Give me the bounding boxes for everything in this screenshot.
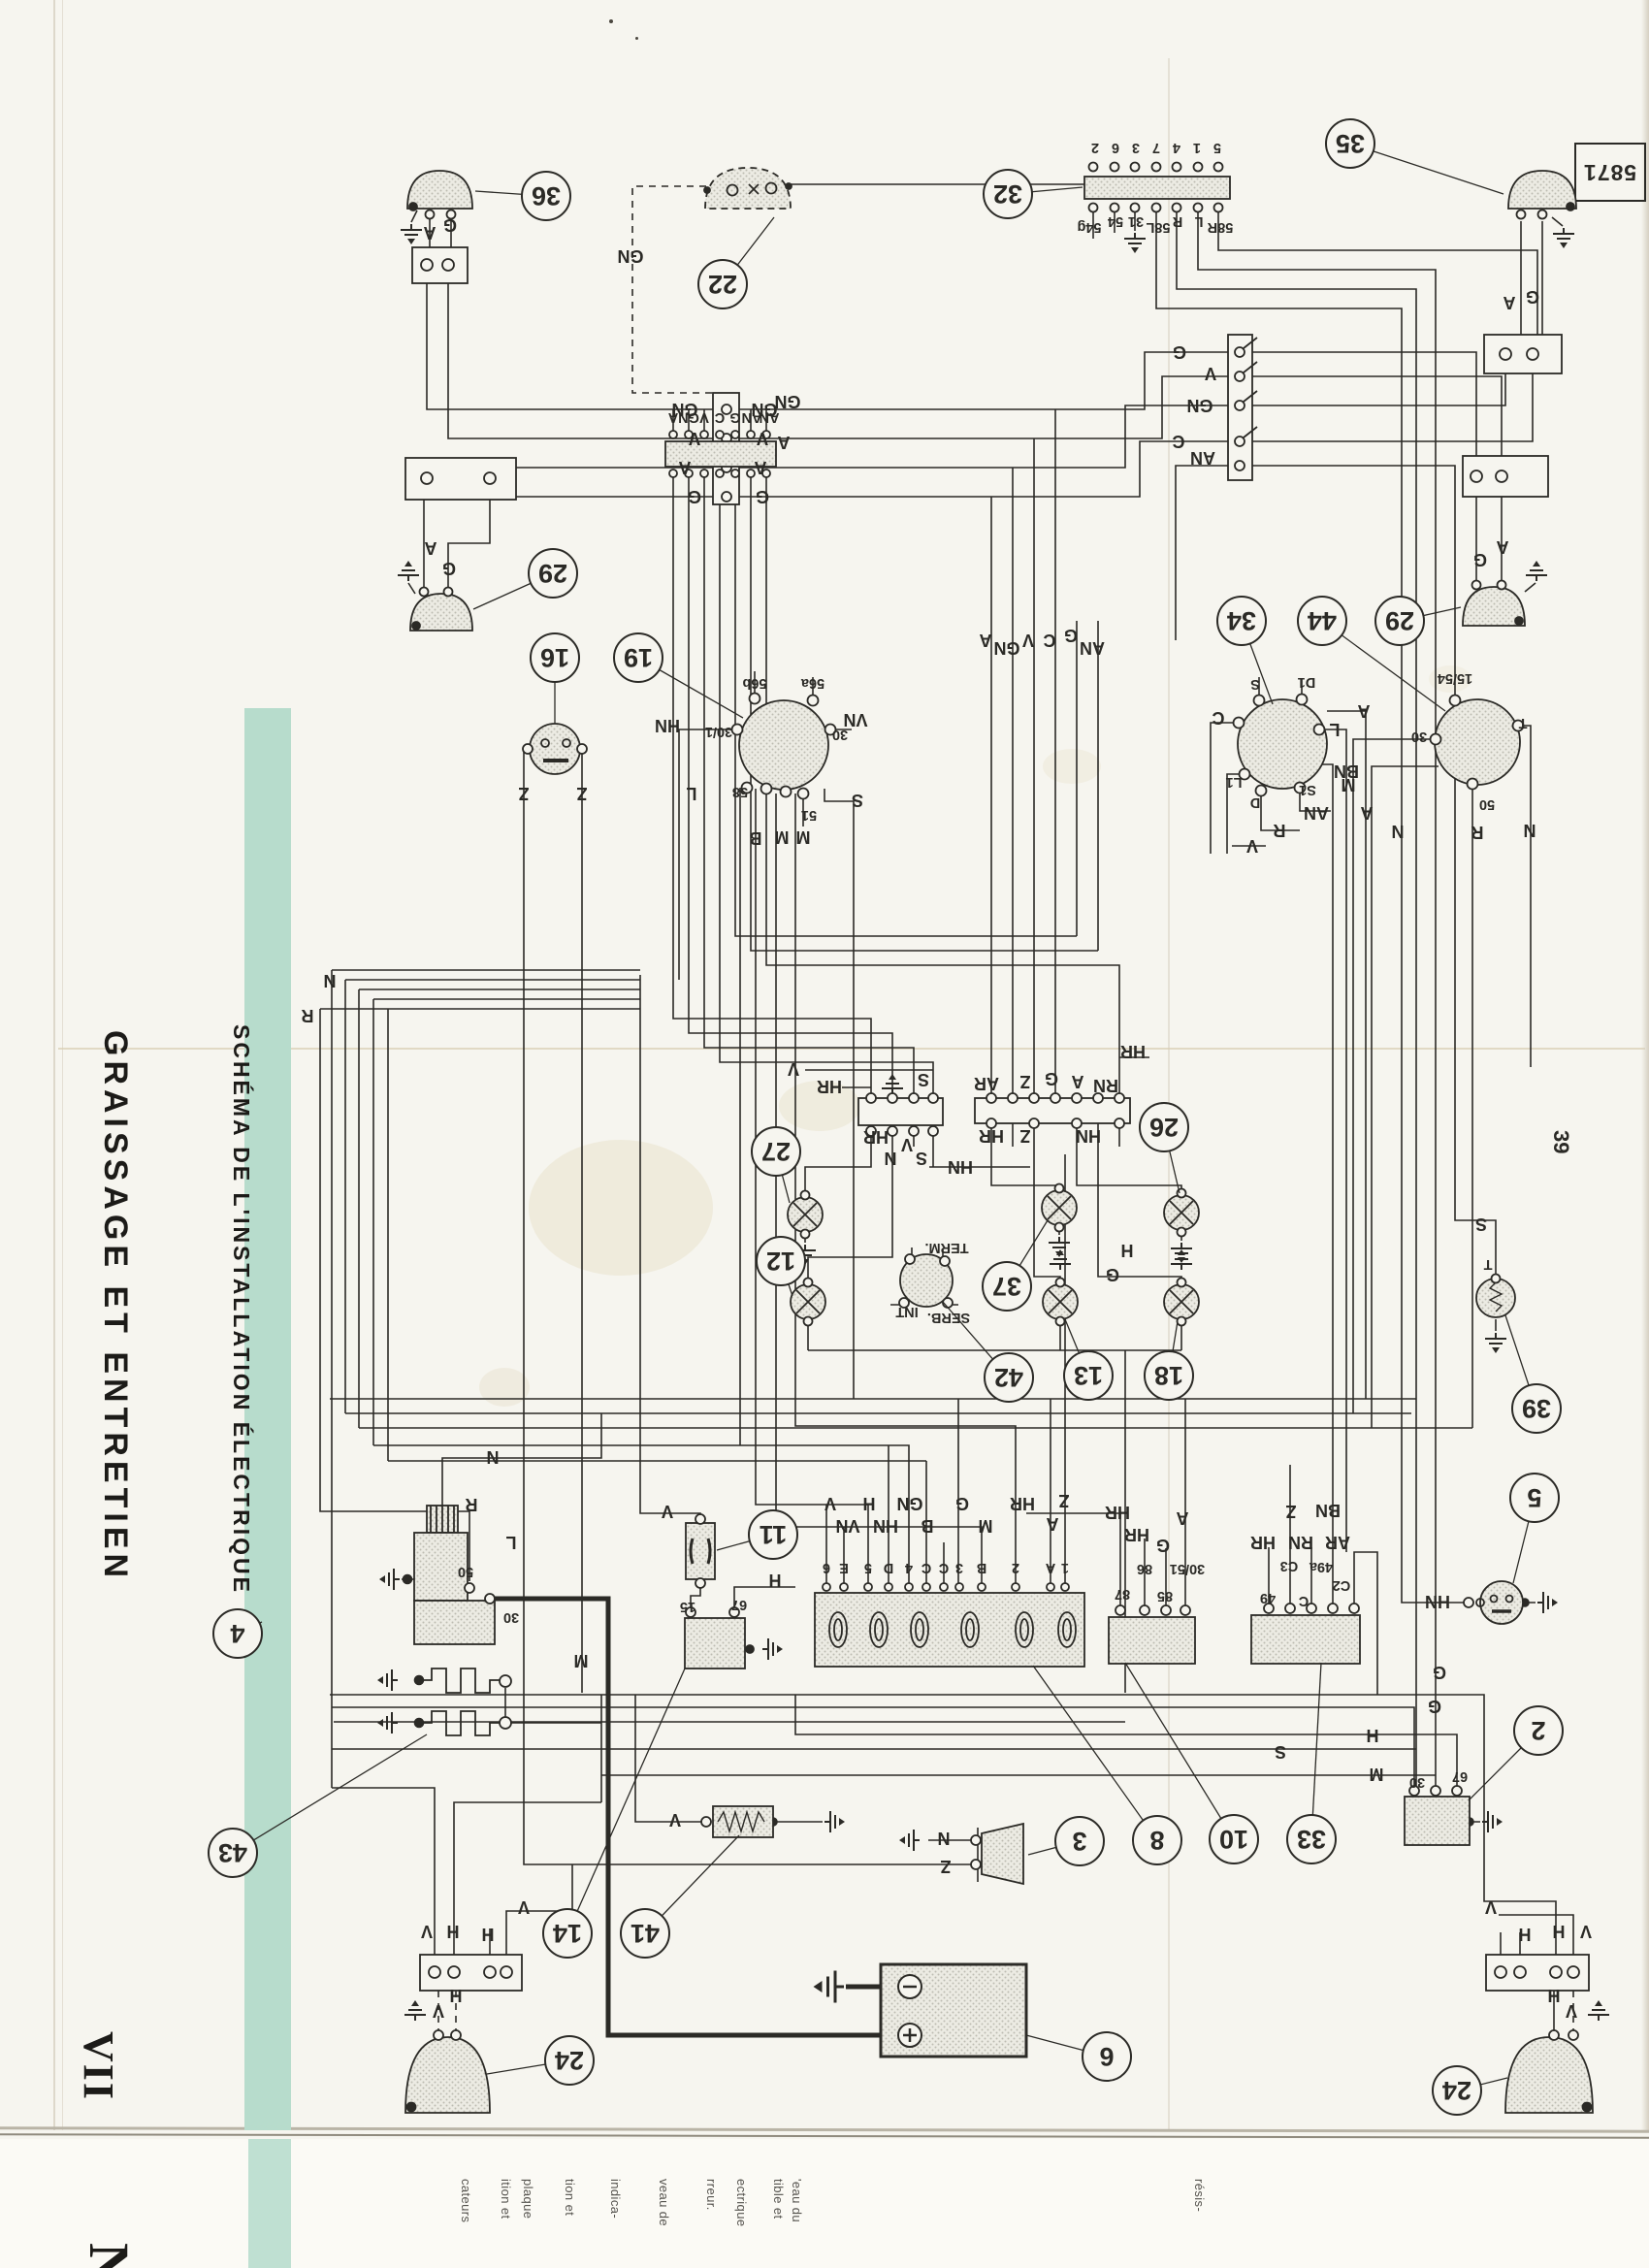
callout-number: 16 xyxy=(540,643,569,672)
wire-label: G xyxy=(955,1494,969,1513)
wire-label: H xyxy=(1548,1986,1561,2005)
heater-resistors-43 xyxy=(419,1669,511,1735)
wire-label: AR xyxy=(1325,1533,1350,1552)
terminal-label: 2 xyxy=(1091,140,1099,155)
wire-label: GN xyxy=(897,1494,923,1513)
terminal-label: 56b xyxy=(742,675,766,691)
regulator-2 xyxy=(1405,1786,1470,1845)
terminal-label: V xyxy=(699,409,709,425)
wire-label: R xyxy=(302,1006,314,1025)
terminal-label: 50 xyxy=(458,1564,473,1579)
wire-label: A xyxy=(1503,293,1516,312)
wire-label: G xyxy=(442,559,456,578)
wire-label: GN xyxy=(994,638,1020,658)
wire-label: A xyxy=(755,458,767,477)
wire-label: V xyxy=(788,1059,799,1079)
callout-leader xyxy=(1311,1663,1321,1839)
callout-number: 6 xyxy=(1099,2042,1114,2071)
two-pin-connectors xyxy=(405,247,1562,500)
wire-label: V xyxy=(1485,1897,1497,1917)
terminal-label: 49 xyxy=(1260,1590,1276,1605)
scanned-manual-page: VII GRAISSAGE ET ENTRETIEN SCHÉMA DE L'I… xyxy=(0,0,1649,2268)
terminal-label: 7 xyxy=(1152,140,1160,155)
terminal-label: S1 xyxy=(1299,782,1316,797)
stoplight-switch-16 xyxy=(523,724,587,774)
wire-label: A xyxy=(980,631,992,650)
wire-label: Z xyxy=(1020,1126,1031,1146)
flasher-switch-34 xyxy=(1234,695,1328,796)
terminal-label: A xyxy=(667,409,678,425)
terminal-label: TERM. xyxy=(924,1240,968,1255)
wire-label: A xyxy=(425,538,437,558)
wire-label: Z xyxy=(1059,1491,1070,1510)
wire-label: A xyxy=(1361,803,1374,823)
callout-number: 34 xyxy=(1227,606,1256,635)
wire-label: A xyxy=(1497,537,1509,557)
wire-label: S xyxy=(1275,1742,1286,1762)
connector-32 xyxy=(1084,163,1230,212)
terminal-label: 58R xyxy=(1207,219,1233,235)
temp-gauge-39 xyxy=(1476,1275,1515,1318)
terminal-label: 1 xyxy=(1193,140,1201,155)
terminal-label: C xyxy=(921,1560,931,1575)
callout-number: 13 xyxy=(1074,1361,1103,1390)
terminal-label: 15 xyxy=(680,1599,695,1614)
terminal-label: C xyxy=(714,409,725,425)
wire-label: VN xyxy=(835,1516,859,1536)
terminal-label: S xyxy=(1250,676,1260,692)
wire-label: HN xyxy=(1425,1592,1450,1611)
wire-label: HR xyxy=(1124,1525,1149,1544)
wire-label: G xyxy=(1473,550,1487,569)
terminal-label: E xyxy=(839,1560,849,1575)
callout-number: 3 xyxy=(1072,1827,1086,1856)
wire-label: G xyxy=(756,487,769,506)
wire-label: V xyxy=(1022,631,1034,650)
paper-stains xyxy=(479,665,1471,1407)
wire-label: S xyxy=(916,1149,927,1168)
wire-label: GN xyxy=(1187,396,1213,415)
wire-label: A xyxy=(1072,1072,1084,1091)
terminal-label: C3 xyxy=(1280,1558,1299,1573)
wire-label: HR xyxy=(863,1127,889,1147)
fuel-gauge-42 xyxy=(899,1254,953,1308)
lamp-37a xyxy=(1042,1184,1077,1232)
wire-label: G xyxy=(1064,626,1078,645)
callout-number: 2 xyxy=(1531,1716,1545,1745)
wire-label: BN xyxy=(1315,1501,1341,1520)
callout-leader xyxy=(1033,1666,1157,1840)
terminal-label: 30/51 xyxy=(1170,1561,1205,1576)
wire-label: HN xyxy=(873,1516,898,1536)
terminal-label: 1 xyxy=(1061,1560,1069,1575)
terminal-label: 58L xyxy=(1146,219,1170,235)
flasher-relay-33 xyxy=(1251,1604,1360,1664)
terminal-label: G xyxy=(729,409,740,425)
wire-label: M xyxy=(1342,775,1356,794)
switch-11 xyxy=(686,1514,715,1588)
wire-label: H xyxy=(450,1986,463,2005)
terminal-label: 15/54 xyxy=(1438,670,1472,686)
wire-label: Z xyxy=(1020,1072,1031,1091)
wire-label: G xyxy=(1433,1663,1446,1682)
wire-label: HR xyxy=(1120,1042,1146,1061)
terminal-label: 30 xyxy=(1411,729,1427,744)
relay-10 xyxy=(1109,1605,1195,1664)
wire-label: G xyxy=(1106,1265,1119,1284)
wire-label: L xyxy=(506,1533,517,1552)
lamp-27 xyxy=(788,1191,823,1239)
terminal-label: T xyxy=(1518,715,1527,730)
wire-label: G xyxy=(1045,1069,1058,1088)
terminal-label: 5 xyxy=(864,1560,872,1575)
wire-label: H xyxy=(482,1925,495,1944)
wire-label: H xyxy=(769,1571,782,1590)
wire-label: R xyxy=(1471,823,1484,842)
right-vertical-connector-switch xyxy=(1228,335,1257,480)
wire-label: G xyxy=(688,487,701,506)
callout-leader xyxy=(567,1669,685,1933)
callout-leader xyxy=(1125,1663,1234,1839)
terminal-label: SERB. xyxy=(927,1310,970,1325)
terminal-label: 50 xyxy=(1479,796,1495,812)
light-switch-19 xyxy=(732,694,836,799)
wire-label: H xyxy=(863,1494,876,1513)
wire-label: M xyxy=(796,827,811,847)
horn-5 xyxy=(1464,1581,1523,1624)
ballast-resistor-41 xyxy=(701,1806,773,1837)
parking-lamp-35 xyxy=(1508,171,1576,219)
wire-label: AN xyxy=(1080,638,1105,658)
terminal-label: GN xyxy=(678,409,699,425)
callout-number: 32 xyxy=(993,179,1022,209)
terminal-label: C xyxy=(1298,1593,1309,1608)
wire-label: Z xyxy=(941,1857,952,1876)
wire-label: HN xyxy=(655,716,680,735)
wire-label: V xyxy=(1580,1922,1592,1941)
wire-label: V xyxy=(901,1135,913,1154)
terminal-label: L xyxy=(1194,213,1203,229)
terminal-label: 87 xyxy=(1115,1586,1130,1602)
wire-label: R xyxy=(1274,821,1286,840)
lamp-18 xyxy=(1164,1279,1199,1326)
callout-number: 22 xyxy=(708,270,737,299)
wire-label: V xyxy=(1246,836,1258,856)
wire-label: RN xyxy=(1288,1533,1313,1552)
callout-number: 5 xyxy=(1527,1483,1541,1512)
wire-label: H xyxy=(1553,1922,1566,1941)
wire-label: VN xyxy=(843,710,867,729)
terminal-label: 86 xyxy=(1137,1561,1152,1576)
terminal-label: C2 xyxy=(1333,1577,1351,1593)
callout-number: 8 xyxy=(1149,1826,1164,1855)
dash-connector-right xyxy=(975,1093,1130,1128)
wire-label: HR xyxy=(1010,1494,1035,1513)
wire-label: GN xyxy=(775,392,801,411)
callout-number: 36 xyxy=(532,181,561,211)
wire-label: G xyxy=(443,215,457,235)
wire-label: R xyxy=(466,1495,478,1514)
wire-label: C xyxy=(1173,432,1185,451)
terminal-label: INT xyxy=(895,1304,919,1319)
wire-label: V xyxy=(1205,364,1216,383)
terminal-label: 30 xyxy=(503,1609,519,1625)
terminal-label: 67 xyxy=(1452,1768,1468,1784)
wire-label: Z xyxy=(519,784,530,803)
terminal-label: 4 xyxy=(905,1560,913,1575)
wire-label: N xyxy=(885,1149,897,1168)
wiring-diagram: 3622323529161934442927123742131826394431… xyxy=(0,0,1649,2268)
wire-label: N xyxy=(487,1447,500,1467)
wire-label: C xyxy=(1212,708,1225,728)
wire-label: L xyxy=(1330,720,1341,739)
tail-lamp-29-left xyxy=(410,588,472,632)
wire-label: H xyxy=(1367,1726,1379,1745)
callout-number: 43 xyxy=(218,1838,247,1867)
callout-number: 29 xyxy=(538,559,567,588)
wire-label: S xyxy=(852,791,863,810)
lamp-26 xyxy=(1164,1189,1199,1237)
wire-label: RN xyxy=(1093,1076,1118,1095)
terminal-label: 85 xyxy=(1157,1588,1173,1604)
ignition-switch-44 xyxy=(1431,696,1524,790)
terminal-label: R xyxy=(1172,213,1182,229)
wire-label: S xyxy=(918,1070,929,1089)
callout-number: 41 xyxy=(630,1919,660,1948)
terminal-label: C xyxy=(938,1560,949,1575)
terminal-label: 6 xyxy=(1112,140,1119,155)
wire-label: N xyxy=(1392,822,1405,841)
wire-label: A xyxy=(679,458,692,477)
callout-number: 44 xyxy=(1308,606,1337,635)
wire-label: A xyxy=(1358,701,1371,721)
terminal-label: B xyxy=(977,1560,986,1575)
wire-label: B xyxy=(750,828,762,848)
wire-label: GN xyxy=(618,246,644,266)
callout-number: 29 xyxy=(1385,606,1414,635)
callout-number: 42 xyxy=(994,1363,1023,1392)
terminal-label: 31 xyxy=(1128,213,1144,229)
wire-label: V xyxy=(757,429,768,448)
lamp-37b xyxy=(1043,1279,1078,1326)
terminal-label: 30 xyxy=(1409,1774,1425,1790)
wire-label: V xyxy=(1566,2001,1577,2021)
callout-number: 12 xyxy=(766,1247,795,1276)
wire-label: H xyxy=(447,1922,460,1941)
wire-label: HN xyxy=(1076,1126,1101,1146)
callout-number: 26 xyxy=(1149,1113,1179,1142)
headlamp-24-left xyxy=(405,2030,490,2113)
callout-number: 24 xyxy=(1442,2076,1471,2105)
wire-label: V xyxy=(433,2001,444,2021)
callout-number: 10 xyxy=(1219,1825,1248,1854)
interior-lamp-22 xyxy=(704,168,792,209)
wire-label: M xyxy=(775,827,790,847)
terminal-label: 3 xyxy=(955,1560,963,1575)
wire-label: HR xyxy=(979,1126,1004,1146)
wire-label: N xyxy=(1524,821,1536,840)
callout-number: 27 xyxy=(761,1137,791,1166)
wire-label: A xyxy=(424,223,436,243)
terminal-label: 2 xyxy=(1012,1560,1019,1575)
wire-label: H xyxy=(1121,1241,1134,1260)
wire-label: M xyxy=(574,1651,589,1670)
terminal-label: AN xyxy=(760,409,780,425)
wire-label: V xyxy=(824,1494,836,1513)
terminal-label: A xyxy=(1045,1560,1055,1575)
wire-label: B xyxy=(921,1516,934,1536)
callout-number: 18 xyxy=(1154,1361,1183,1390)
tail-lamp-29-right xyxy=(1463,581,1525,627)
wire-label: HR xyxy=(1105,1503,1130,1522)
terminal-label: L1 xyxy=(1226,774,1243,790)
fuel-pump-14 xyxy=(685,1607,754,1669)
wire-label: A xyxy=(778,433,791,452)
callout-number: 11 xyxy=(760,1520,788,1549)
wire-label: S xyxy=(1475,1215,1487,1234)
wire-label: Z xyxy=(577,784,588,803)
wire-label: A xyxy=(1047,1514,1059,1534)
wire-label: M xyxy=(979,1516,993,1536)
terminal-label: D1 xyxy=(1298,674,1316,690)
wire-label: G xyxy=(1173,342,1186,362)
callout-leader xyxy=(233,1734,427,1853)
wire-label: HR xyxy=(817,1077,842,1096)
wire-label: G xyxy=(1428,1697,1441,1716)
wire-label: V xyxy=(669,1810,681,1830)
terminal-label: AN xyxy=(742,409,762,425)
wire-label: HR xyxy=(1250,1533,1276,1552)
wire-label: AR xyxy=(974,1074,999,1093)
headlamp-24-right xyxy=(1505,2030,1593,2113)
terminal-label: 56a xyxy=(800,675,824,691)
horn-3 xyxy=(971,1824,1023,1884)
terminal-label: 54 xyxy=(1108,213,1123,229)
wire-label: HN xyxy=(948,1157,973,1177)
wire-label: AN xyxy=(1304,803,1329,823)
callout-number: 4 xyxy=(230,1619,244,1648)
wire-label: N xyxy=(938,1829,951,1848)
wire-label: Z xyxy=(1286,1502,1297,1521)
starter-motor-4 xyxy=(414,1506,495,1644)
terminal-label: D xyxy=(884,1560,893,1575)
terminal-label: 4 xyxy=(1173,140,1180,155)
wire-label: N xyxy=(324,971,337,990)
wire-labels: AGGN263741554g543158LRL58RAGGAAGGNVAGGNV… xyxy=(302,140,1593,2021)
wire-label: M xyxy=(1370,1765,1384,1784)
fuse-box-8 xyxy=(815,1583,1084,1667)
callout-number: 35 xyxy=(1336,129,1365,158)
wire-label: L xyxy=(687,784,697,803)
wire-label: G xyxy=(1526,287,1539,307)
terminal-label: T xyxy=(1483,1256,1492,1272)
wire-label: AN xyxy=(1190,448,1215,468)
wire-label: H xyxy=(1519,1925,1532,1944)
callout-number: 24 xyxy=(555,2046,584,2075)
wire-label: V xyxy=(518,1897,530,1917)
terminal-label: 3 xyxy=(1132,140,1140,155)
wire-label: V xyxy=(689,429,700,448)
callout-number: 39 xyxy=(1522,1394,1551,1423)
wire-label: G xyxy=(1156,1536,1170,1555)
wire-label: A xyxy=(1177,1508,1189,1528)
terminal-label: D xyxy=(1250,794,1260,810)
terminal-label: 58 xyxy=(732,784,748,799)
callout-number: 33 xyxy=(1297,1825,1326,1854)
terminal-label: 6 xyxy=(823,1560,830,1575)
callout-number: 19 xyxy=(624,643,653,672)
terminal-label: 30/1 xyxy=(705,724,732,739)
terminal-label: 49a xyxy=(1309,1559,1333,1574)
callout-number: 14 xyxy=(553,1919,582,1948)
terminal-label: 54g xyxy=(1078,219,1102,235)
callout-number: 37 xyxy=(992,1272,1021,1301)
wire-label: V xyxy=(662,1502,673,1521)
wire-label: V xyxy=(421,1922,433,1941)
terminal-label: 67 xyxy=(731,1597,747,1612)
terminal-label: 5 xyxy=(1213,140,1221,155)
terminal-label: 51 xyxy=(801,807,817,823)
wire-label: C xyxy=(1044,631,1056,650)
battery-6 xyxy=(881,1964,1026,2057)
